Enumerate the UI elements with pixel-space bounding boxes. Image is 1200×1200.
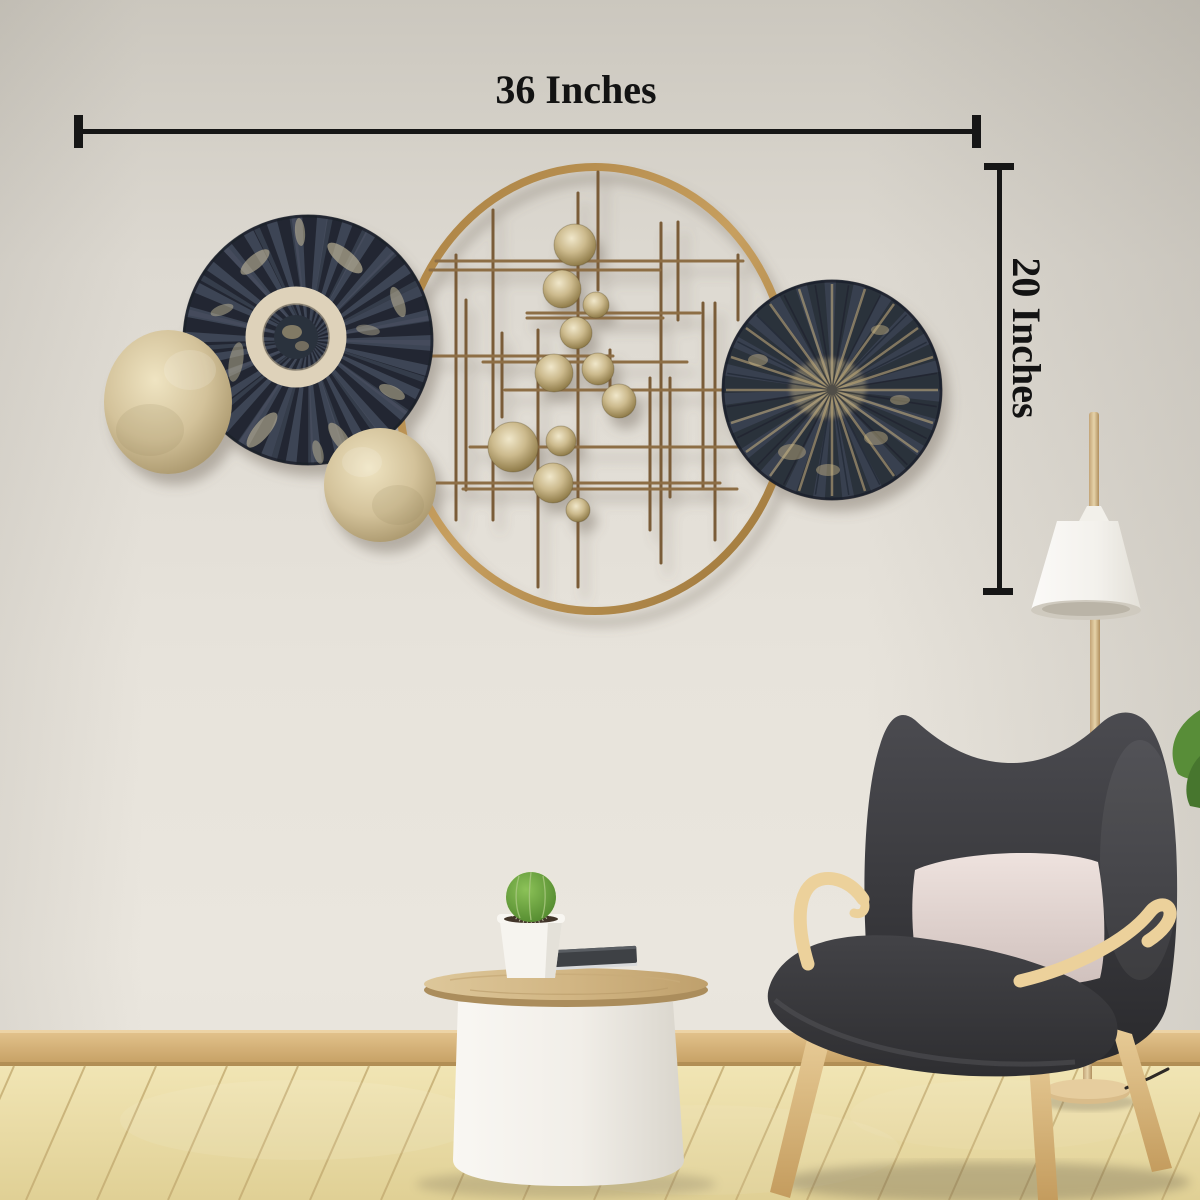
product-photo-room-scene: { "annotations": { "width_label": "36 In… [0,0,1200,1200]
lamp-shade-cap [1078,506,1110,523]
height-dimension-top-cap [984,163,1014,170]
notebook [552,946,637,970]
height-dimension-bottom-cap [983,588,1013,595]
width-dimension-left-cap [74,115,83,148]
table-top [424,968,708,1000]
lamp-shade [1031,521,1141,610]
cactus-pot [497,871,565,978]
width-dimension-line [78,129,977,134]
champagne-disc-middle [324,428,436,542]
scene-graphic [0,0,1200,1200]
cactus [506,872,556,922]
width-dimension-label: 36 Inches [426,66,726,113]
plant-leaf [1173,710,1200,808]
height-dimension-label: 20 Inches [1004,188,1048,488]
starburst-navy-disc [711,269,954,512]
width-dimension-right-cap [972,115,981,148]
side-table [424,871,708,1186]
height-dimension-line [997,166,1002,590]
table-base [453,1002,684,1186]
champagne-disc-left [104,330,232,474]
metal-wall-art [104,167,953,611]
